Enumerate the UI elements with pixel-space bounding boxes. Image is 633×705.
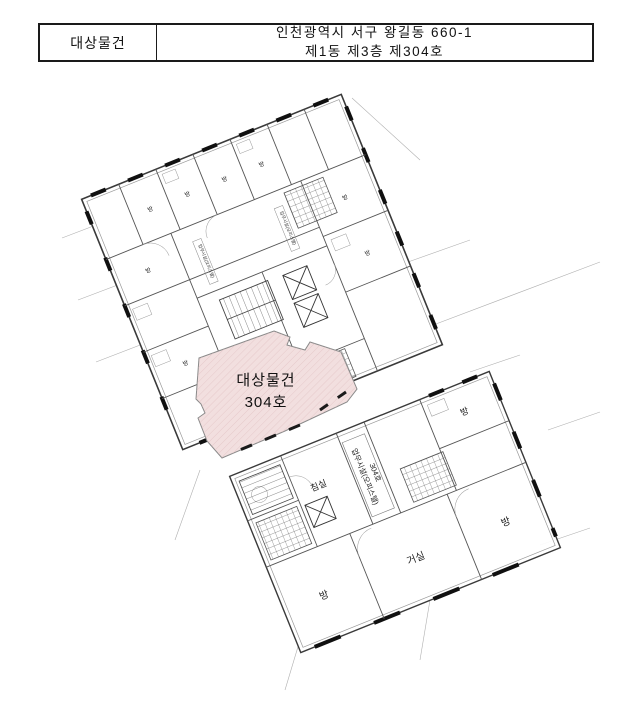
subject-unit-number: 304호 xyxy=(245,394,288,411)
floorplan-svg: 방 방 방 방 방 방 방 방 업무시설(오피스텔) 업무시설(오피스텔) 대상… xyxy=(0,0,633,700)
floorplan-drawing: 방 방 방 방 방 방 방 방 업무시설(오피스텔) 업무시설(오피스텔) 대상… xyxy=(0,0,633,700)
subject-address-line2: 제1동 제3층 제304호 xyxy=(305,43,444,61)
subject-header-table: 대상물건 인천광역시 서구 왕길동 660-1 제1동 제3층 제304호 xyxy=(38,23,594,62)
appraisal-floorplan-page: { "header": { "label": "대상물건", "address_… xyxy=(0,0,633,700)
subject-address: 인천광역시 서구 왕길동 660-1 제1동 제3층 제304호 xyxy=(157,25,592,60)
subject-unit-name: 대상물건 xyxy=(236,372,295,389)
subject-address-line1: 인천광역시 서구 왕길동 660-1 xyxy=(276,24,473,42)
subject-header-label: 대상물건 xyxy=(40,25,157,60)
